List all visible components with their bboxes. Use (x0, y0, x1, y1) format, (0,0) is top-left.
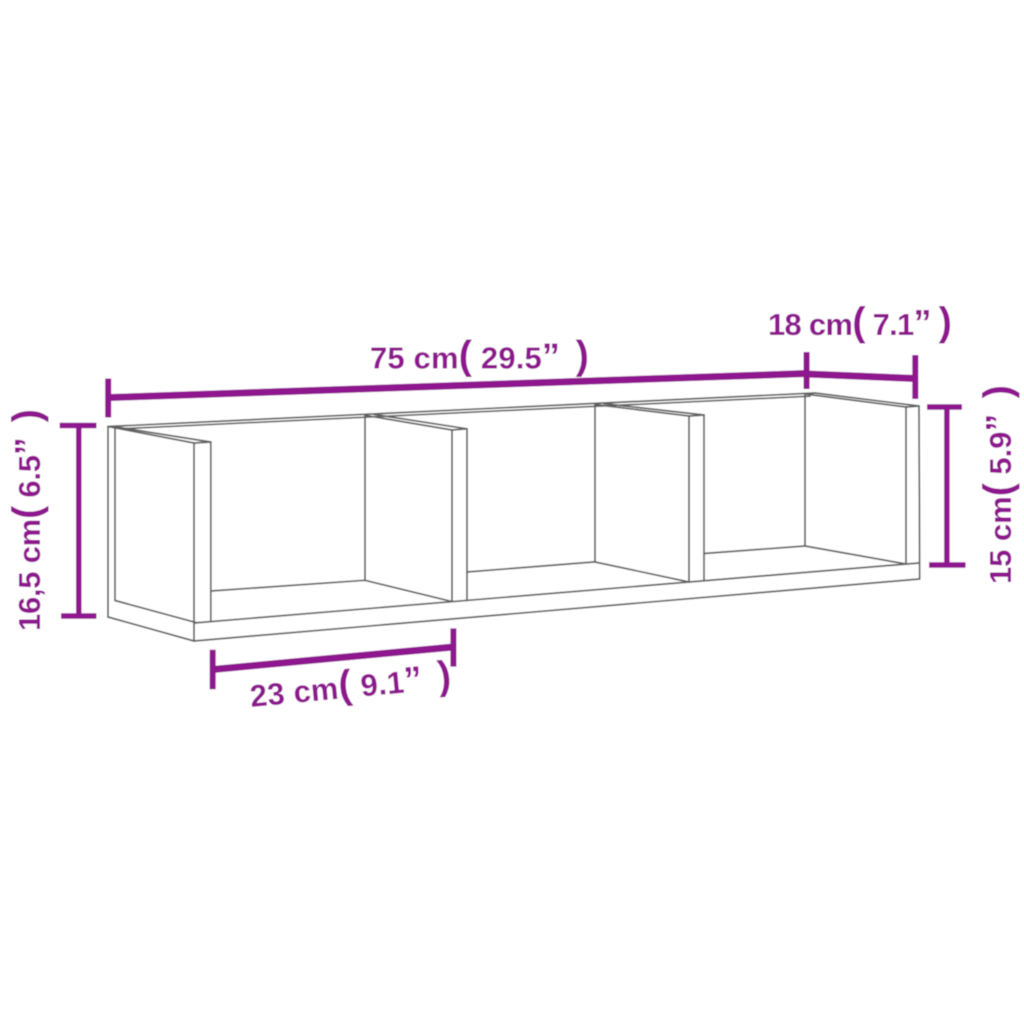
svg-text:16,5 cm( 6.5” ): 16,5 cm( 6.5” ) (5, 409, 49, 631)
svg-text:75 cm( 29.5” ): 75 cm( 29.5” ) (370, 333, 589, 377)
svg-text:15 cm( 5.9” ): 15 cm( 5.9” ) (976, 385, 1020, 584)
svg-text:18 cm( 7.1” ): 18 cm( 7.1” ) (768, 300, 952, 344)
